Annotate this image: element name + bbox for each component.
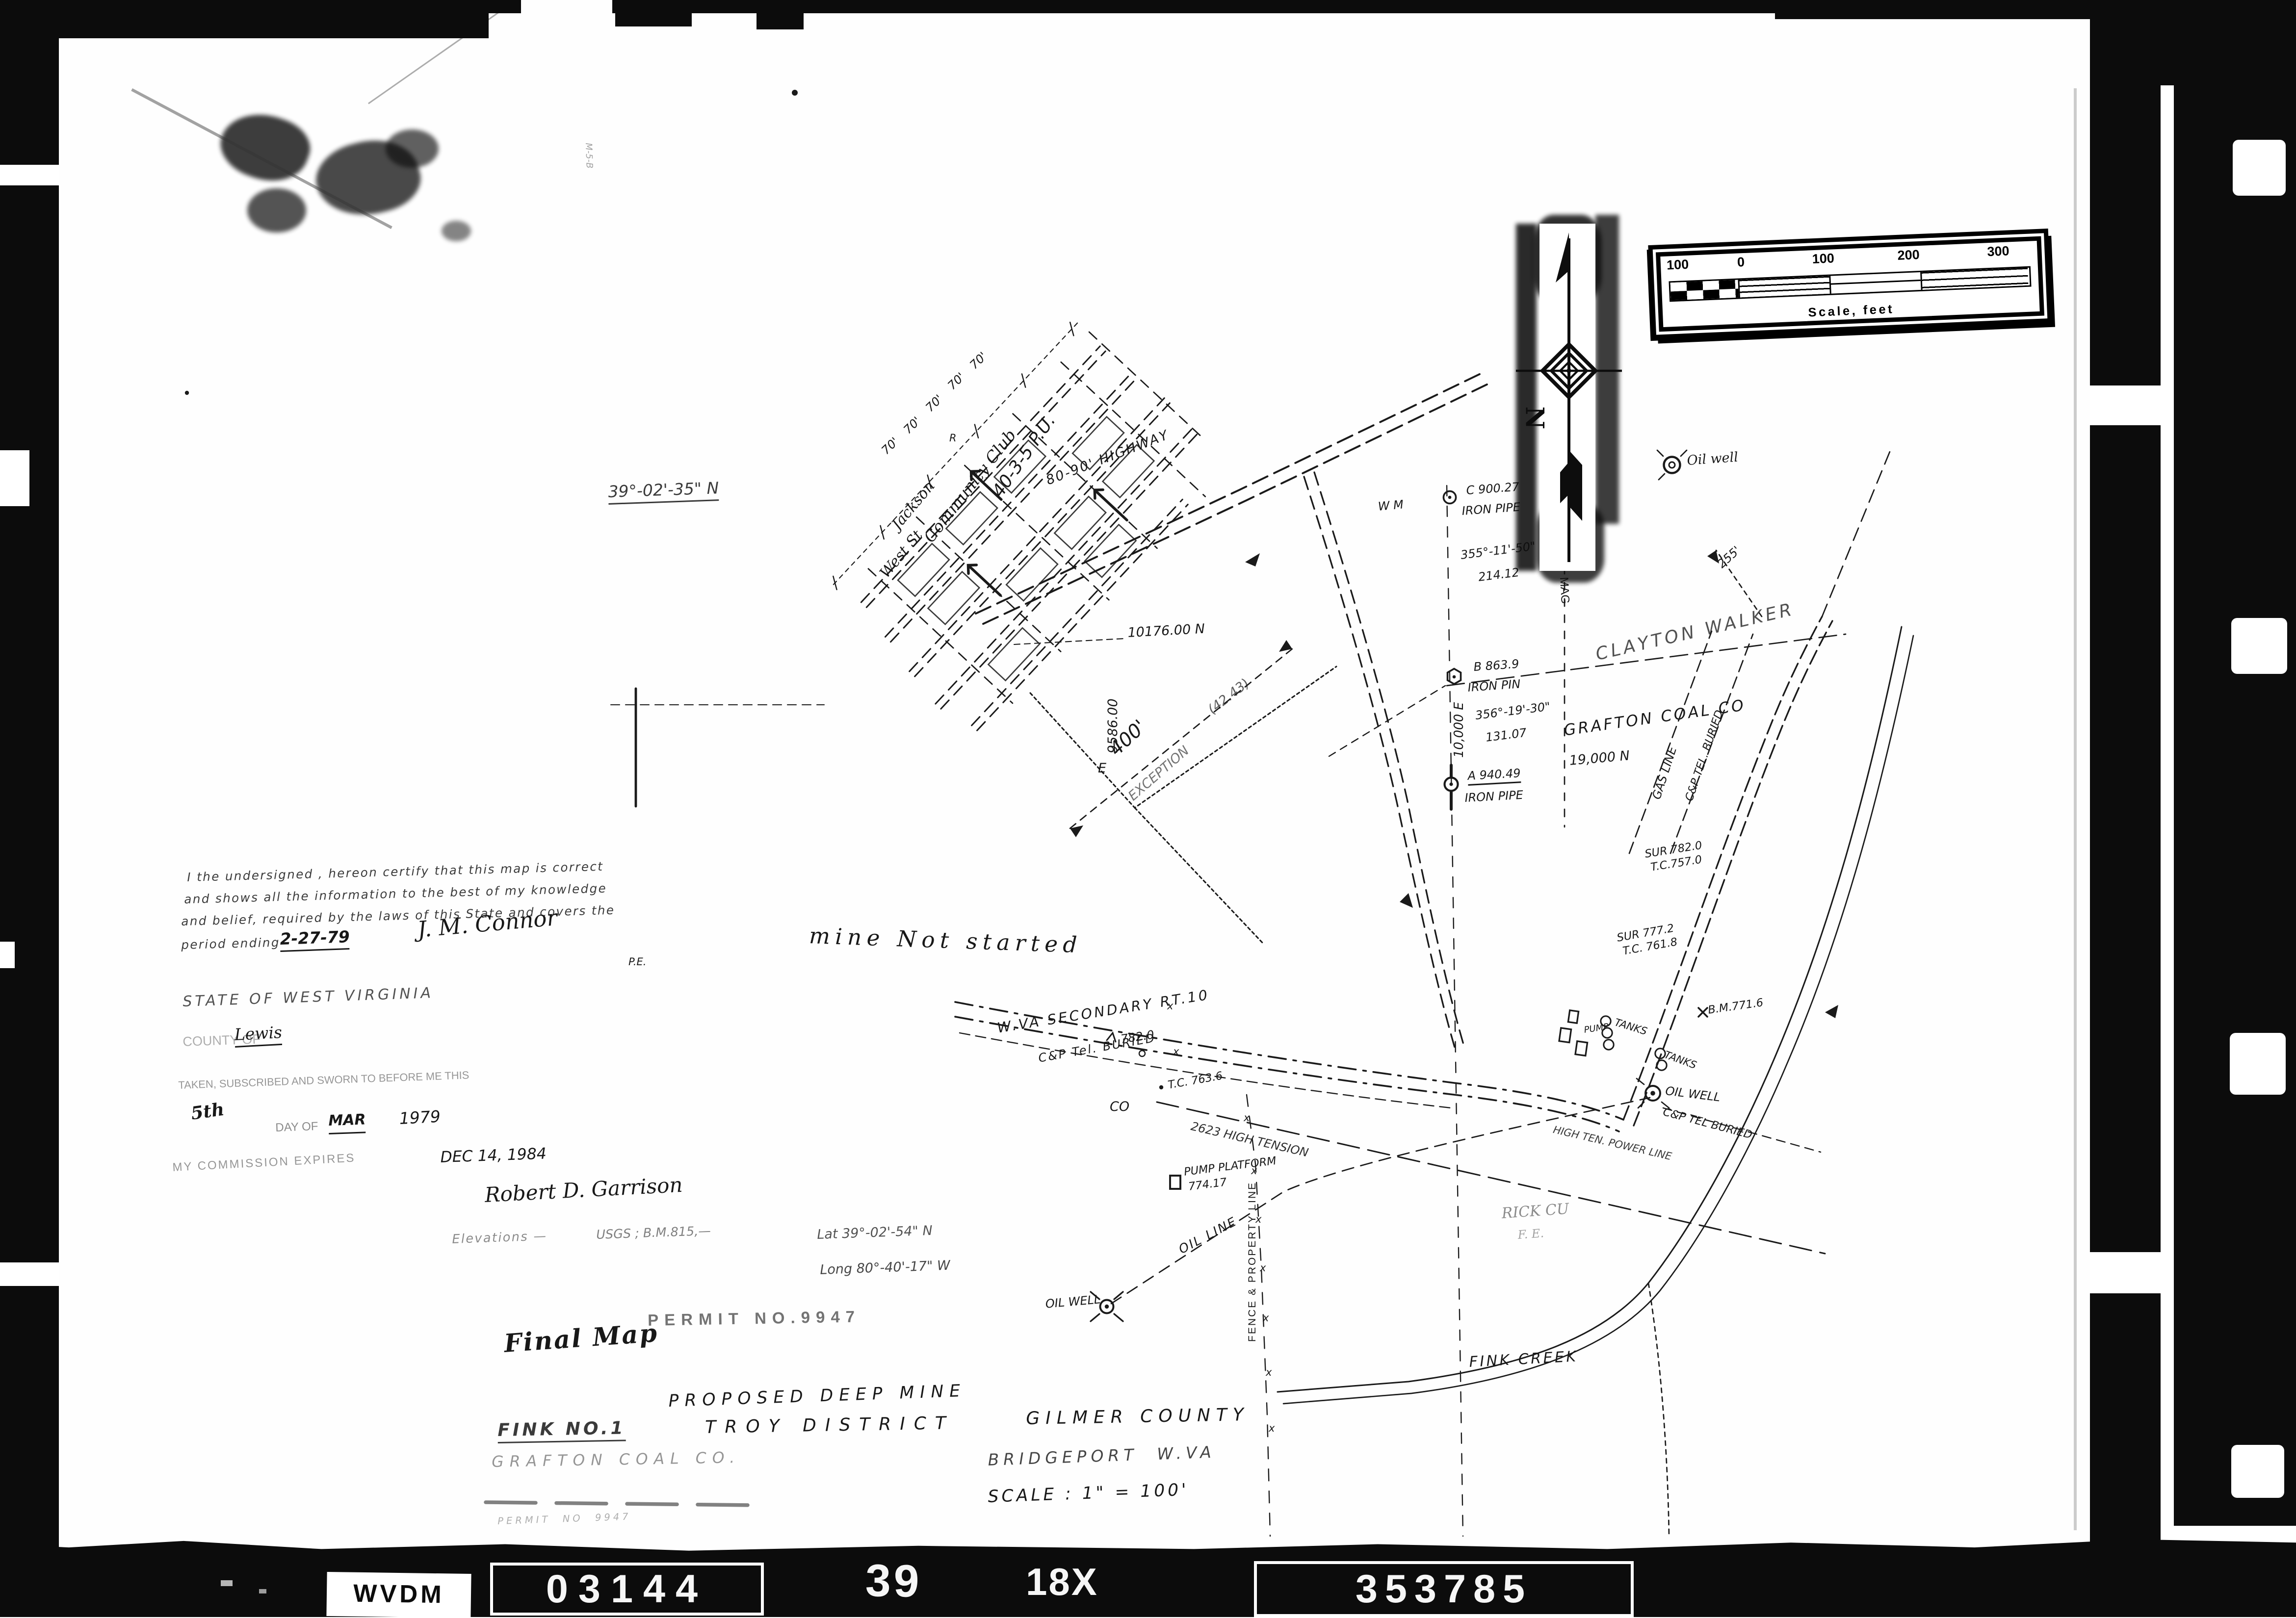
notary-month: MAR (328, 1114, 366, 1133)
pin-a-label2: IRON PIPE (1464, 790, 1524, 805)
archive-reel-box: 03144 (490, 1563, 764, 1616)
fence-x-6: x (1260, 1264, 1266, 1275)
tel-line-label-1: C&P TEL. BURIED (1684, 709, 1726, 803)
highway-label: 80-90' HIGHWAY (1045, 430, 1172, 490)
notary-day-of: DAY OF (275, 1121, 318, 1135)
scale-tick: 100 (1666, 257, 1689, 273)
film-sprocket (2233, 140, 2286, 196)
film-edge-right-outer (2174, 0, 2296, 1617)
fence-x-8: x (1266, 1368, 1272, 1379)
archive-agency-box: WVDM (326, 1572, 471, 1618)
tanks-2: TANKS (1662, 1051, 1697, 1072)
tanks-1: TANKS (1613, 1018, 1648, 1038)
archive-id-box: 353785 (1254, 1561, 1634, 1617)
fence-x-7: x (1263, 1314, 1269, 1325)
pump-label: PUMP (1584, 1024, 1610, 1036)
archive-frame-code: 18X (1026, 1563, 1098, 1601)
power-label-2: HIGH TEN. POWER LINE (1552, 1126, 1672, 1163)
film-smudge (442, 221, 471, 241)
fence-x-4: x (1251, 1167, 1257, 1178)
coord-19000: 19,000 N (1569, 751, 1630, 770)
co-label: CO (1110, 1102, 1129, 1116)
exception-label: EXCEPTION (1127, 745, 1193, 805)
film-sprocket (0, 165, 59, 185)
scale-bar-segment (1829, 272, 1921, 294)
microfilm-frame: 39°-02'-35" N70'70'70'70'70'West StJacks… (0, 0, 2296, 1617)
cert-line-4: period ending (181, 936, 280, 951)
film-frame-gap (2090, 385, 2161, 425)
fence-x-3: x (1244, 1114, 1250, 1125)
north-arrow: N (1510, 215, 1628, 583)
film-sprocket (0, 942, 15, 968)
film-smudge (386, 129, 439, 168)
permit-faint: PERMIT NO 9947 (497, 1512, 631, 1527)
scale-tick: 200 (1897, 247, 1920, 263)
notary-expires: MY COMMISSION EXPIRES (172, 1153, 356, 1175)
notary-county-name: Lewis (234, 1025, 283, 1047)
title-company: GRAFTON COAL CO. (492, 1451, 740, 1471)
film-sprocket (2230, 1033, 2286, 1095)
archive-frame-number: 39 (865, 1558, 922, 1604)
title-proposed: PROPOSED DEEP MINE (668, 1382, 966, 1410)
scale-bar-segment (1738, 276, 1829, 298)
film-edge-left (0, 0, 59, 1617)
owner-rick-2: F. E. (1517, 1228, 1544, 1242)
notary-exp-date: DEC 14, 1984 (440, 1147, 547, 1167)
cert-line-1: I the undersigned , hereon certify that … (187, 860, 604, 884)
bearing-2-dist: 131.07 (1485, 728, 1527, 745)
cert-date: 2-27-79 (280, 929, 350, 951)
film-sprocket (2231, 1445, 2284, 1498)
scale-bar-segment (1920, 268, 2028, 290)
north-letter: N (1518, 407, 1548, 430)
film-sprocket (2231, 618, 2287, 674)
oilwell-mid-label: OIL WELL (1665, 1086, 1721, 1105)
film-smudge (247, 188, 306, 232)
mine-note: mine Not started (809, 925, 1082, 958)
scale-bar: 100 0 100 200 300 Scale, feet (1656, 236, 2044, 332)
dim-70-3: 70' (924, 393, 946, 415)
notary-year: 1979 (399, 1109, 441, 1128)
scale-tick: 300 (1987, 243, 2009, 259)
coord-10000e: 10,000 E (1454, 702, 1467, 758)
title-city: BRIDGEPORT W.VA (988, 1444, 1216, 1469)
rt10-label: W.VA SECONDARY RT.10 (996, 989, 1211, 1037)
gas-line-label: GAS LINE (1651, 745, 1680, 801)
lat-note: 39°-02'-35" N (608, 480, 719, 504)
oilwell-sw-label: OIL WELL (1045, 1294, 1101, 1311)
cert-line-2: and shows all the information to the bes… (184, 882, 607, 905)
oil-line-label: OIL LINE (1177, 1216, 1240, 1258)
permit-no: PERMIT NO.9947 (648, 1310, 861, 1331)
benchmark-771: B.M.771.6 (1707, 997, 1764, 1016)
elev-note: Elevations — (452, 1231, 548, 1248)
film-sprocket (0, 1262, 59, 1286)
fence-x-2: x (1173, 1048, 1179, 1058)
fence-label: FENCE & PROPERTY LINE (1248, 1181, 1259, 1342)
north-arrow-icon (1510, 215, 1628, 583)
scale-tick: 0 (1737, 255, 1745, 270)
pin-b-label: B 863.9 (1473, 659, 1519, 675)
fence-x-9: x (1269, 1424, 1275, 1435)
cert-pe: P.E. (628, 958, 646, 969)
notary-day: 5th (190, 1101, 225, 1124)
film-edge-right-inner (2090, 0, 2161, 1617)
film-code-note: M-5-B (582, 143, 593, 169)
dim-70-1: 70' (880, 436, 902, 458)
title-mine-name: FINK NO.1 (497, 1419, 626, 1442)
film-gap (2161, 0, 2174, 1617)
scale-tick: 100 (1812, 251, 1834, 266)
notary-signature: Robert D. Garrison (484, 1176, 683, 1207)
dist-255: 255' (1716, 545, 1744, 571)
owner-clayton: CLAYTON WALKER (1594, 600, 1796, 664)
dim-70-4: 70' (946, 371, 968, 393)
dim-70-5: 70' (968, 351, 990, 372)
oilwell-ne-label: Oil well (1687, 453, 1739, 470)
street-west: West St (879, 529, 927, 582)
wm-label: W M (1378, 499, 1404, 514)
exception-area: (42.43) (1207, 678, 1253, 719)
bearing-2: 356°-19'-30" (1475, 701, 1551, 723)
film-speck (221, 1580, 233, 1586)
film-edge-top (1775, 0, 2090, 19)
pin-b-label2: IRON PIN (1467, 679, 1521, 695)
title-county: GILMER COUNTY (1026, 1406, 1250, 1428)
film-speck (259, 1589, 266, 1593)
power-label-1: 2623 HIGH TENSION (1189, 1121, 1309, 1160)
fink-creek: FINK CREEK (1469, 1351, 1578, 1372)
notary-sworn: TAKEN, SUBSCRIBED AND SWORN TO BEFORE ME… (178, 1070, 470, 1091)
elev-note-2: USGS ; B.M.815,— (596, 1226, 711, 1243)
film-sprocket (0, 450, 29, 506)
film-frame-gap (2090, 1252, 2161, 1293)
fence-x-5: x (1255, 1215, 1261, 1226)
film-edge-top (615, 0, 692, 26)
coord-10176: 10176.00 N (1127, 624, 1205, 642)
tc-763: T.C. 763.6 (1167, 1070, 1224, 1091)
fence-x-1: x (1167, 1002, 1173, 1013)
lat-note-2: Lat 39°-02'-54" N (817, 1226, 933, 1244)
pump-platform-label: PUMP PLATFORM (1183, 1156, 1277, 1179)
notary-state: STATE OF WEST VIRGINIA (183, 987, 434, 1011)
film-edge-top (59, 0, 489, 38)
paper-edge-line (2074, 88, 2076, 1530)
archive-agency-label: WVDM (353, 1580, 444, 1611)
pin-a-label: A 940.49 (1467, 768, 1521, 786)
long-note: Long 80°-40'-17" W (820, 1261, 950, 1280)
lot-r: R (949, 434, 957, 445)
tel-line-label-3: C&P TEL BURIED (1662, 1106, 1753, 1141)
film-edge-top (757, 0, 804, 29)
pump-platform-elev: 774.17 (1188, 1177, 1227, 1193)
dim-70-2: 70' (902, 415, 924, 437)
coord-9586-e: E (1098, 764, 1106, 777)
archive-id-number: 353785 (1356, 1569, 1532, 1609)
archive-reel-number: 03144 (546, 1569, 708, 1609)
final-map: Final Map (503, 1322, 659, 1359)
title-district: TROY DISTRICT (705, 1414, 955, 1437)
owner-rick: RICK CU (1501, 1203, 1569, 1223)
film-corner (2090, 0, 2296, 85)
title-scale: SCALE : 1" = 100' (988, 1481, 1189, 1505)
scale-bar-checker (1670, 280, 1739, 301)
